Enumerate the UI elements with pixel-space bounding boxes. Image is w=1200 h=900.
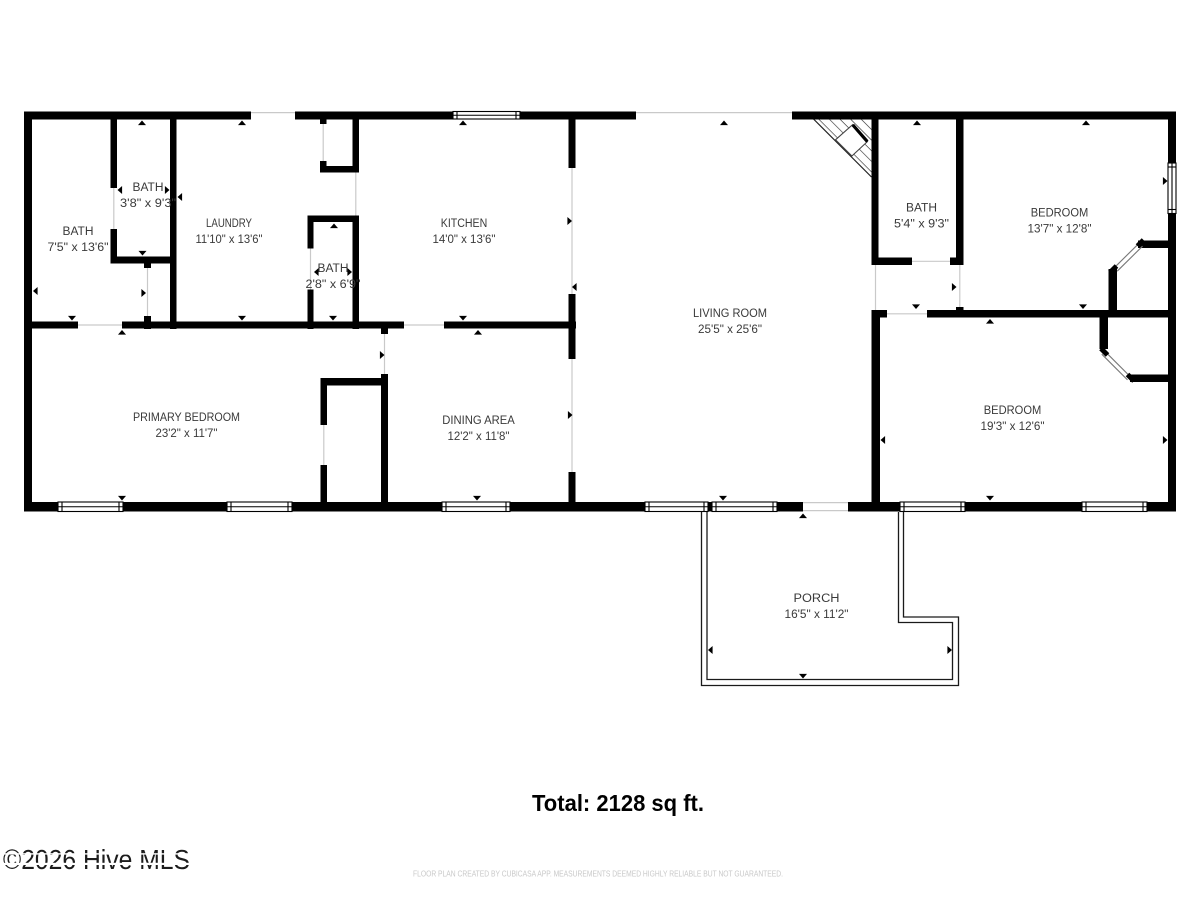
svg-text:PRIMARY BEDROOM: PRIMARY BEDROOM bbox=[133, 410, 240, 424]
svg-text:13'7" x 12'8": 13'7" x 12'8" bbox=[1028, 222, 1092, 236]
svg-text:5'4" x 9'3": 5'4" x 9'3" bbox=[894, 217, 949, 231]
svg-text:DINING AREA: DINING AREA bbox=[442, 413, 515, 427]
svg-text:7'5" x 13'6": 7'5" x 13'6" bbox=[48, 240, 109, 254]
svg-text:BATH: BATH bbox=[906, 201, 937, 215]
svg-text:BATH: BATH bbox=[133, 180, 164, 194]
svg-text:BEDROOM: BEDROOM bbox=[984, 403, 1042, 417]
svg-text:BATH: BATH bbox=[63, 224, 94, 238]
svg-text:KITCHEN: KITCHEN bbox=[441, 216, 488, 230]
svg-text:BEDROOM: BEDROOM bbox=[1031, 206, 1089, 220]
svg-text:©2026 Hive MLS: ©2026 Hive MLS bbox=[3, 844, 190, 875]
svg-text:11'10" x 13'6": 11'10" x 13'6" bbox=[196, 232, 263, 246]
svg-text:12'2" x 11'8": 12'2" x 11'8" bbox=[448, 429, 510, 443]
svg-text:FLOOR PLAN CREATED BY CUBICASA: FLOOR PLAN CREATED BY CUBICASA APP. MEAS… bbox=[413, 870, 783, 879]
svg-text:Total: 2128 sq ft.: Total: 2128 sq ft. bbox=[532, 790, 704, 816]
svg-text:2'8" x 6'9": 2'8" x 6'9" bbox=[306, 277, 361, 291]
svg-text:BATH: BATH bbox=[318, 261, 349, 275]
svg-text:23'2" x 11'7": 23'2" x 11'7" bbox=[156, 426, 218, 440]
svg-text:14'0" x 13'6": 14'0" x 13'6" bbox=[433, 232, 496, 246]
svg-text:LIVING ROOM: LIVING ROOM bbox=[693, 306, 767, 320]
svg-text:3'8" x 9'3": 3'8" x 9'3" bbox=[120, 196, 176, 210]
svg-text:LAUNDRY: LAUNDRY bbox=[206, 216, 252, 230]
svg-text:PORCH: PORCH bbox=[794, 591, 840, 605]
svg-text:25'5" x 25'6": 25'5" x 25'6" bbox=[698, 322, 762, 336]
svg-text:16'5" x 11'2": 16'5" x 11'2" bbox=[785, 607, 849, 621]
svg-text:19'3" x 12'6": 19'3" x 12'6" bbox=[981, 419, 1045, 433]
